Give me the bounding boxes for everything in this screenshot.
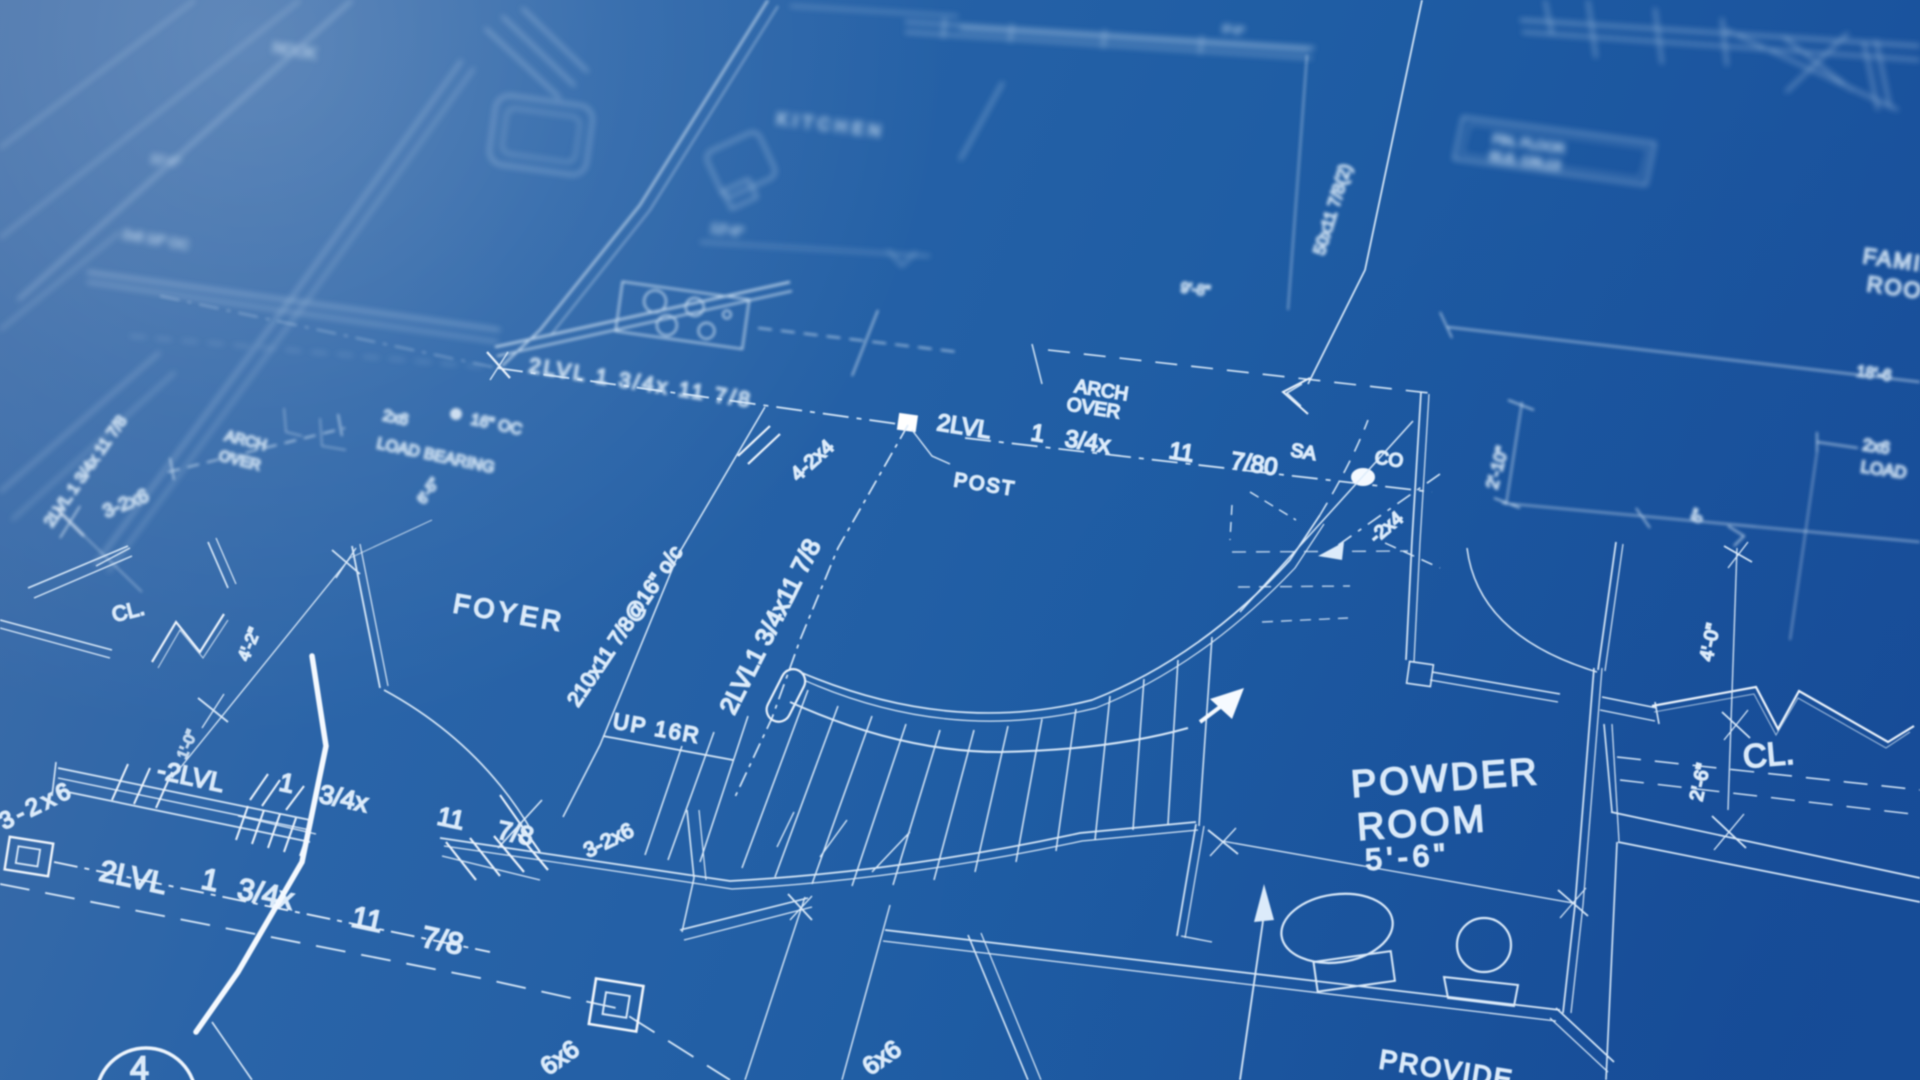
svg-text:11: 11 [1167, 437, 1196, 468]
svg-text:SA: SA [1289, 440, 1318, 465]
svg-text:4: 4 [130, 1050, 149, 1080]
svg-text:2x6: 2x6 [1861, 435, 1891, 458]
svg-text:5'-6": 5'-6" [1364, 838, 1451, 877]
svg-text:CL.: CL. [1741, 734, 1795, 775]
